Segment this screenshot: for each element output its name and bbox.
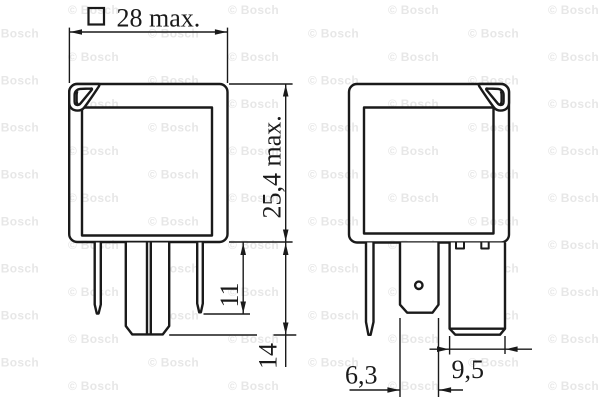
svg-text:© Bosch: © Bosch	[548, 3, 599, 17]
svg-text:9,5: 9,5	[452, 355, 485, 384]
svg-text:© Bosch: © Bosch	[548, 144, 599, 158]
svg-text:© Bosch: © Bosch	[468, 27, 519, 41]
svg-text:© Bosch: © Bosch	[68, 285, 119, 299]
svg-text:25,4 max.: 25,4 max.	[258, 115, 287, 218]
svg-text:© Bosch: © Bosch	[548, 50, 599, 64]
svg-text:28 max.: 28 max.	[117, 4, 201, 33]
svg-text:© Bosch: © Bosch	[0, 356, 39, 370]
svg-text:© Bosch: © Bosch	[388, 379, 439, 393]
svg-text:© Bosch: © Bosch	[548, 238, 599, 252]
svg-text:© Bosch: © Bosch	[68, 238, 119, 252]
svg-text:© Bosch: © Bosch	[388, 50, 439, 64]
svg-text:© Bosch: © Bosch	[148, 121, 199, 135]
svg-text:© Bosch: © Bosch	[548, 379, 599, 393]
svg-text:© Bosch: © Bosch	[548, 332, 599, 346]
svg-text:© Bosch: © Bosch	[228, 238, 279, 252]
svg-text:© Bosch: © Bosch	[0, 215, 39, 229]
svg-text:14: 14	[254, 343, 283, 369]
svg-text:6,3: 6,3	[345, 361, 378, 390]
svg-text:© Bosch: © Bosch	[228, 97, 279, 111]
svg-text:© Bosch: © Bosch	[68, 3, 119, 17]
svg-text:© Bosch: © Bosch	[68, 332, 119, 346]
svg-text:© Bosch: © Bosch	[388, 332, 439, 346]
svg-text:© Bosch: © Bosch	[68, 144, 119, 158]
svg-text:© Bosch: © Bosch	[228, 50, 279, 64]
svg-text:© Bosch: © Bosch	[68, 191, 119, 205]
svg-text:© Bosch: © Bosch	[548, 285, 599, 299]
svg-text:© Bosch: © Bosch	[0, 74, 39, 88]
svg-text:© Bosch: © Bosch	[148, 168, 199, 182]
svg-text:© Bosch: © Bosch	[548, 97, 599, 111]
svg-text:© Bosch: © Bosch	[148, 74, 199, 88]
svg-text:11: 11	[215, 282, 244, 307]
svg-text:© Bosch: © Bosch	[0, 309, 39, 323]
svg-text:© Bosch: © Bosch	[388, 191, 439, 205]
svg-text:© Bosch: © Bosch	[228, 3, 279, 17]
svg-text:© Bosch: © Bosch	[548, 191, 599, 205]
svg-text:© Bosch: © Bosch	[388, 3, 439, 17]
svg-text:© Bosch: © Bosch	[68, 50, 119, 64]
svg-text:© Bosch: © Bosch	[388, 97, 439, 111]
svg-text:© Bosch: © Bosch	[308, 121, 359, 135]
svg-text:© Bosch: © Bosch	[388, 144, 439, 158]
svg-text:© Bosch: © Bosch	[148, 356, 199, 370]
svg-text:© Bosch: © Bosch	[0, 262, 39, 276]
svg-text:© Bosch: © Bosch	[0, 121, 39, 135]
svg-text:© Bosch: © Bosch	[308, 27, 359, 41]
svg-text:© Bosch: © Bosch	[0, 168, 39, 182]
svg-text:© Bosch: © Bosch	[148, 215, 199, 229]
svg-text:© Bosch: © Bosch	[228, 379, 279, 393]
svg-text:© Bosch: © Bosch	[0, 27, 39, 41]
svg-text:© Bosch: © Bosch	[308, 309, 359, 323]
svg-text:© Bosch: © Bosch	[308, 262, 359, 276]
svg-text:© Bosch: © Bosch	[308, 168, 359, 182]
svg-text:© Bosch: © Bosch	[308, 215, 359, 229]
svg-text:© Bosch: © Bosch	[68, 379, 119, 393]
